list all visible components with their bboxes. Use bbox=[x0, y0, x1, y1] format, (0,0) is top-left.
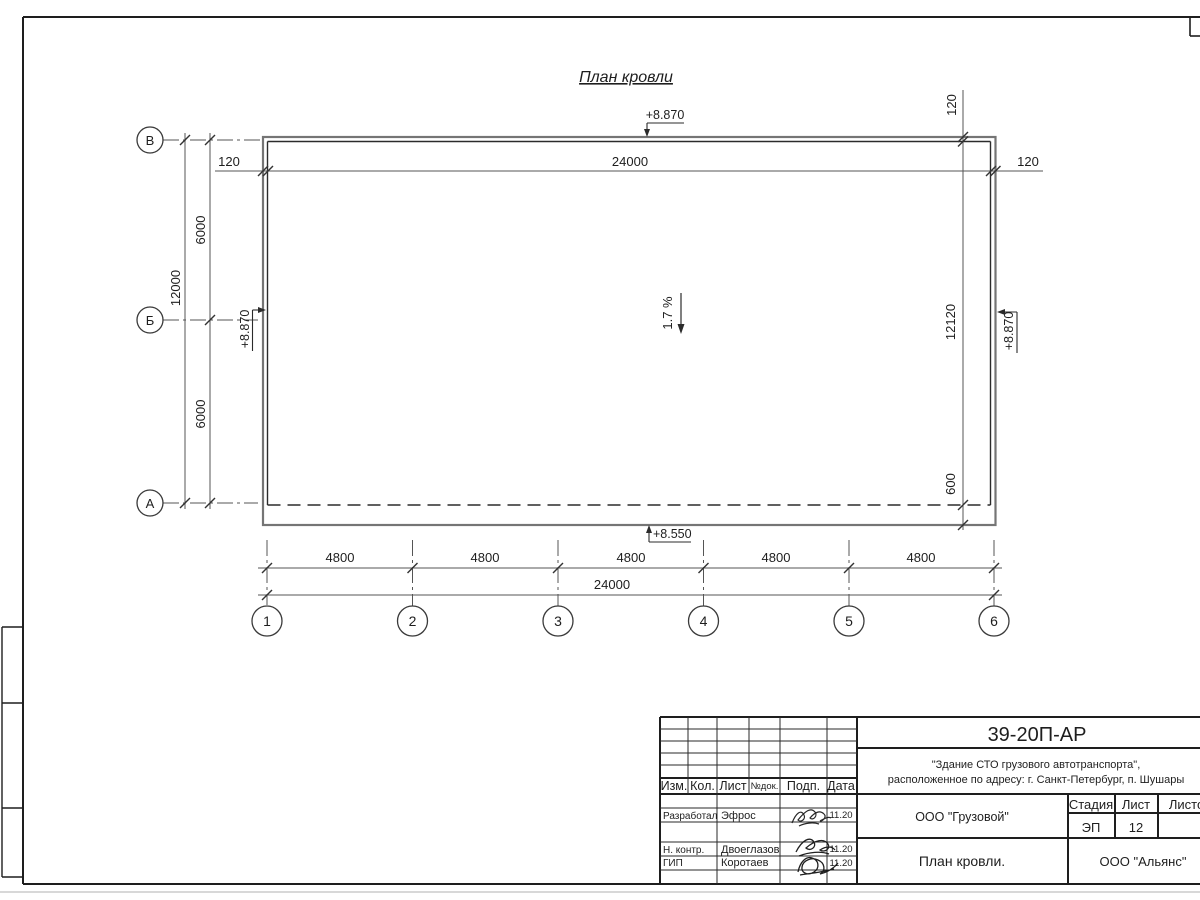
project-name-line2: расположенное по адресу: г. Санкт-Петерб… bbox=[888, 774, 1185, 786]
dim-120-right-vert: 120 bbox=[944, 94, 959, 116]
axis-letter-labels: В Б А bbox=[146, 133, 155, 511]
axis-label-b: Б bbox=[146, 313, 155, 328]
dimension-ticks bbox=[180, 132, 1001, 600]
dim-120-top-left: 120 bbox=[218, 154, 240, 169]
sheet-value: 12 bbox=[1129, 820, 1143, 835]
arrow-down-icon bbox=[678, 324, 685, 334]
header-kol: Кол. bbox=[690, 779, 715, 793]
axis-label-1: 1 bbox=[263, 613, 271, 629]
arrow-up-icon bbox=[646, 525, 652, 533]
arrow-down-icon bbox=[644, 129, 650, 137]
dim-24000-bottom: 24000 bbox=[594, 577, 630, 592]
slope-label: 1.7 % bbox=[660, 296, 675, 330]
dim-120-top-right: 120 bbox=[1017, 154, 1039, 169]
row-name: Двоеглазов bbox=[721, 844, 780, 856]
dimension-labels: 120 24000 120 120 12120 600 12000 6000 6… bbox=[168, 94, 1039, 592]
project-name-line1: "Здание СТО грузового автотранспорта", bbox=[932, 759, 1141, 771]
title-block: Изм. Кол. Лист №док. Подп. Дата Разработ… bbox=[660, 717, 1200, 884]
sheet-title: План кровли. bbox=[919, 853, 1005, 869]
header-podp: Подп. bbox=[787, 779, 820, 793]
dim-6000-lower: 6000 bbox=[193, 400, 208, 429]
titleblock-header-row: Изм. Кол. Лист №док. Подп. Дата bbox=[661, 779, 855, 793]
elevation-right-label: +8.870 bbox=[1002, 312, 1016, 351]
dim-4800-1: 4800 bbox=[326, 550, 355, 565]
left-margin-stamp-boxes bbox=[2, 627, 23, 877]
row-role: ГИП bbox=[663, 858, 683, 869]
header-data: Дата bbox=[827, 779, 855, 793]
company-name: ООО "Альянс" bbox=[1100, 854, 1187, 869]
dim-4800-4: 4800 bbox=[762, 550, 791, 565]
row-name: Эфрос bbox=[721, 810, 756, 822]
header-ndok: №док. bbox=[751, 781, 779, 792]
drawing-sheet: План кровли bbox=[0, 0, 1200, 900]
header-list: Лист bbox=[719, 779, 746, 793]
axis-bubbles-numbers bbox=[252, 606, 1009, 636]
row-role: Н. контр. bbox=[663, 845, 704, 856]
sheets-label: Листов bbox=[1169, 797, 1200, 812]
roof-plan-canvas: План кровли bbox=[0, 0, 1200, 900]
row-name: Коротаев bbox=[721, 857, 769, 869]
slope-mark: 1.7 % bbox=[660, 293, 685, 334]
axis-lines bbox=[163, 140, 994, 606]
elevation-eave: +8.550 bbox=[646, 525, 692, 542]
elevation-top: +8.870 bbox=[644, 108, 684, 137]
sheet-frame bbox=[23, 17, 1200, 884]
dim-12120-right: 12120 bbox=[943, 304, 958, 340]
client-name: ООО "Грузовой" bbox=[915, 810, 1009, 824]
elevation-top-label: +8.870 bbox=[646, 108, 685, 122]
header-izm: Изм. bbox=[661, 779, 688, 793]
stage-value: ЭП bbox=[1082, 820, 1101, 835]
axis-number-labels: 1 2 3 4 5 6 bbox=[263, 613, 998, 629]
roof-outline bbox=[263, 137, 996, 525]
stage-label: Стадия bbox=[1069, 797, 1113, 812]
axis-label-3: 3 bbox=[554, 613, 562, 629]
row-date: 11.20 bbox=[829, 844, 852, 855]
dim-12000-left: 12000 bbox=[168, 270, 183, 306]
dim-600-right: 600 bbox=[943, 473, 958, 495]
signature bbox=[792, 810, 831, 826]
dim-4800-3: 4800 bbox=[617, 550, 646, 565]
elevation-right: +8.870 bbox=[997, 309, 1017, 353]
elevation-left: +8.870 bbox=[238, 307, 266, 351]
sheet-label: Лист bbox=[1122, 797, 1150, 812]
axis-label-v: В bbox=[146, 133, 155, 148]
axis-label-2: 2 bbox=[409, 613, 417, 629]
dim-4800-2: 4800 bbox=[471, 550, 500, 565]
elevation-left-label: +8.870 bbox=[238, 310, 252, 349]
dim-6000-upper: 6000 bbox=[193, 216, 208, 245]
axis-label-5: 5 bbox=[845, 613, 853, 629]
row-date: 11.20 bbox=[829, 810, 852, 821]
dim-24000-top: 24000 bbox=[612, 154, 648, 169]
axis-label-4: 4 bbox=[700, 613, 708, 629]
axis-label-6: 6 bbox=[990, 613, 998, 629]
elevation-eave-label: +8.550 bbox=[653, 527, 692, 541]
row-role: Разработал bbox=[663, 810, 718, 822]
drawing-title: План кровли bbox=[579, 69, 673, 86]
doc-number: 39-20П-АР bbox=[988, 724, 1087, 746]
dim-4800-5: 4800 bbox=[907, 550, 936, 565]
frame-corner-box bbox=[1190, 17, 1200, 36]
arrow-left-icon bbox=[997, 309, 1005, 315]
axis-label-a: А bbox=[146, 496, 155, 511]
